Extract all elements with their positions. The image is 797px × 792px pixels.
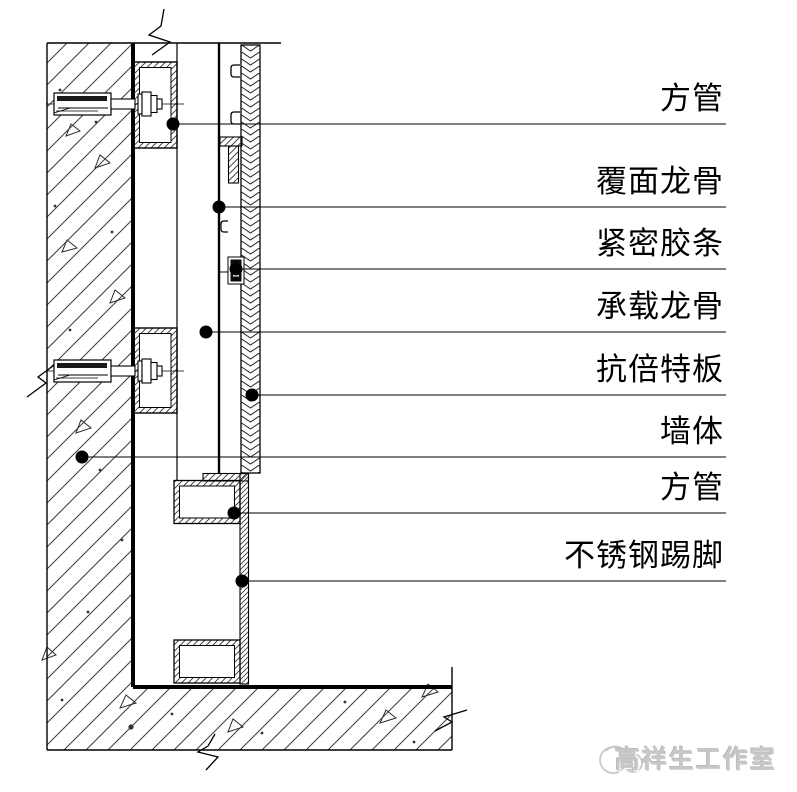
label-wall-body: 墙体 (660, 413, 724, 451)
label-load-bearing-keel: 承载龙骨 (596, 288, 724, 326)
leader-dot-load-bearing-keel (200, 326, 213, 339)
construction-detail-drawing: 方管 覆面龙骨 紧密胶条 承载龙骨 抗倍特板 墙体 方管 不锈钢踢脚 高祥生工作… (0, 0, 797, 792)
leader-dot-compact-laminate-panel (246, 389, 259, 402)
panel-hook-clip-2 (231, 112, 240, 124)
panel-hook-clip-3 (221, 221, 228, 232)
detail-linework (0, 0, 797, 792)
panel-hook-clip-1 (231, 65, 240, 77)
label-compact-laminate-panel: 抗倍特板 (596, 351, 724, 389)
label-square-tube-lower: 方管 (660, 469, 724, 507)
label-stainless-steel-skirting: 不锈钢踢脚 (564, 537, 724, 575)
skirting-tube-bottom (174, 640, 240, 683)
studio-watermark: 高祥生工作室 (615, 745, 777, 775)
break-symbol-top (149, 9, 170, 55)
label-facing-keel: 覆面龙骨 (596, 163, 724, 201)
label-sealing-gasket: 紧密胶条 (596, 225, 724, 263)
leader-dot-sealing-gasket (230, 263, 243, 276)
label-square-tube-upper: 方管 (660, 80, 724, 118)
leader-dot-square-tube-upper (167, 118, 180, 131)
leader-dot-facing-keel (213, 201, 226, 214)
leader-dot-stainless-steel-skirting (236, 575, 249, 588)
facing-keel-clip (220, 137, 242, 183)
leader-dot-wall-body (76, 451, 89, 464)
leader-dot-square-tube-lower (228, 507, 241, 520)
